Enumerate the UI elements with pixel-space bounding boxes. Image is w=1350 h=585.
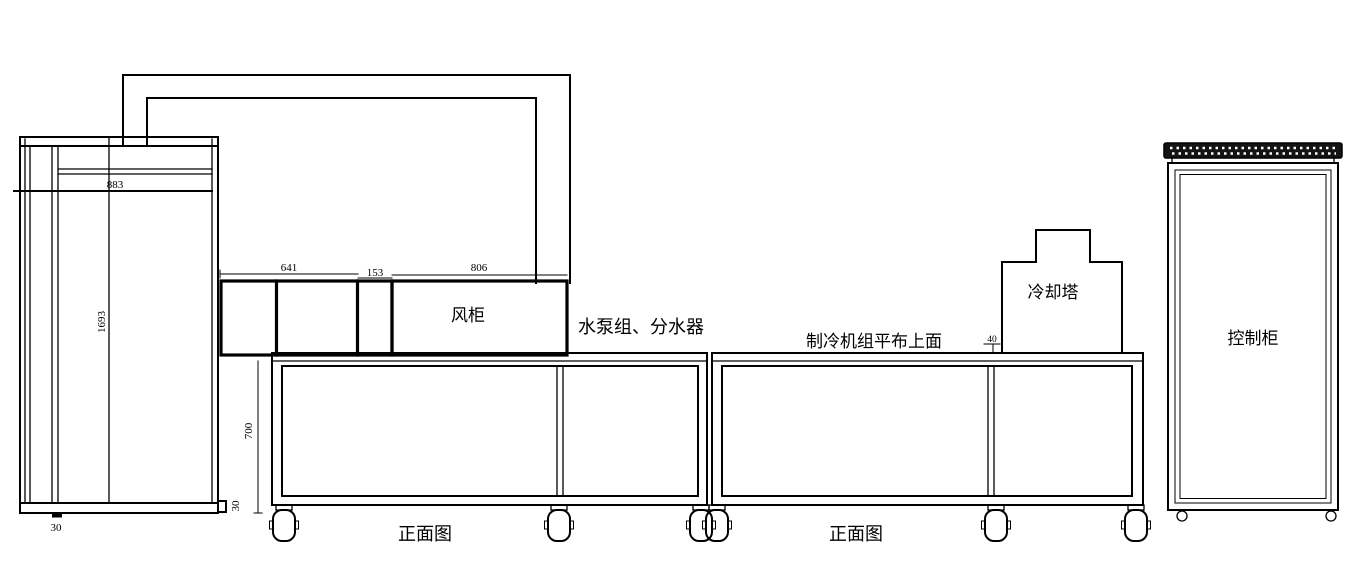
pipe-outer <box>123 75 570 283</box>
label-chiller-note: 制冷机组平布上面 <box>806 332 942 351</box>
right-bench-outline <box>712 353 1143 505</box>
equipment-box-group <box>221 281 392 355</box>
cabinet-foot-wheel <box>1177 511 1187 521</box>
caster-wheel <box>1122 505 1151 541</box>
caster-wheel <box>545 505 574 541</box>
caster-wheel <box>270 505 299 541</box>
view-title-left: 正面图 <box>398 524 452 544</box>
grille-cap <box>1164 143 1342 158</box>
dim-883: 883 <box>107 179 124 191</box>
dim-806: 806 <box>471 262 488 274</box>
dim-30-bracket <box>220 501 226 512</box>
fan-cabinet-box: 风柜 <box>392 281 567 355</box>
vertical-dimensions: 700 30 <box>220 361 262 513</box>
supply-pipes <box>123 75 570 283</box>
dim-30-base: 30 <box>51 522 63 534</box>
view-title-right: 正面图 <box>829 524 883 544</box>
drawing-svg: 883 1693 30 641 153 806 风柜 水泵组、分水器 制冷机组平… <box>0 0 1350 585</box>
dim-641: 641 <box>281 262 298 274</box>
dim-700: 700 <box>243 422 255 439</box>
top-dimensions: 641 153 806 <box>220 262 567 279</box>
dim-30-side: 30 <box>230 500 242 512</box>
dim-1693: 1693 <box>96 311 108 334</box>
right-bench <box>712 353 1143 505</box>
label-fan-cabinet: 风柜 <box>451 306 485 325</box>
label-pump-group: 水泵组、分水器 <box>578 317 704 337</box>
cabinet-foot <box>52 513 62 518</box>
cabinet-foot-wheel <box>1326 511 1336 521</box>
elevation-drawing: 883 1693 30 641 153 806 风柜 水泵组、分水器 制冷机组平… <box>0 0 1350 585</box>
label-cooling-tower: 冷却塔 <box>1028 283 1079 302</box>
left-cabinet-outline <box>20 137 218 513</box>
caster-wheel <box>982 505 1011 541</box>
cooling-tower: 冷却塔 <box>1002 230 1122 353</box>
left-bench-outline <box>272 353 707 505</box>
label-control-cabinet: 控制柜 <box>1228 329 1279 348</box>
dim-153: 153 <box>367 267 384 279</box>
left-cabinet: 883 1693 30 <box>14 137 218 534</box>
left-bench <box>272 353 707 505</box>
dim-40-group: 40 <box>984 335 1000 353</box>
box-group-outline <box>221 281 392 355</box>
control-cabinet: 控制柜 <box>1164 143 1342 521</box>
